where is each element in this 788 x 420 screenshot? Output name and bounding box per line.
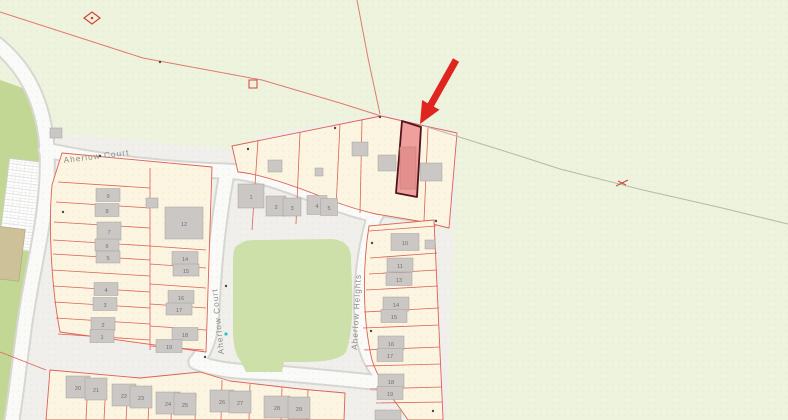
plot-number: 21 (93, 388, 99, 394)
plot-building: 23 (130, 386, 152, 408)
plot-number: 23 (138, 396, 144, 402)
plot-building: 19 (156, 340, 182, 353)
plot-building: 18 (378, 374, 404, 388)
plot-number: 17 (176, 308, 182, 314)
plot-number: 18 (182, 333, 188, 339)
plot-building: 6 (95, 239, 119, 251)
plot-number: 4 (315, 204, 318, 210)
plot-building: 4 (94, 283, 118, 296)
plot-number: 14 (182, 257, 188, 263)
plot-building: 28 (264, 396, 290, 418)
plot-number: 16 (178, 296, 184, 302)
plot-number: 10 (402, 241, 408, 247)
plot-number: 26 (219, 400, 225, 406)
plot-number: 5 (106, 256, 109, 262)
plot-building: 8 (95, 204, 119, 217)
plot-building: 27 (229, 391, 251, 413)
plot-building: 3 (93, 298, 117, 311)
plot-building: 17 (166, 303, 192, 315)
teal-dot-marker (224, 332, 227, 335)
plot-number: 20 (75, 386, 81, 392)
plot-number: 29 (296, 407, 302, 413)
plot-number: 17 (387, 354, 393, 360)
plot-number: 24 (165, 402, 171, 408)
plot-building: 29 (288, 397, 310, 419)
plot-number: 19 (387, 392, 393, 398)
plot-building: 1 (238, 184, 264, 208)
plot-number: 15 (183, 269, 189, 275)
plot-number: 8 (105, 209, 108, 215)
plot-number: 5 (327, 206, 330, 212)
plot-building: 1 (90, 330, 114, 343)
plot-number: 25 (182, 403, 188, 409)
plot-building: 17 (377, 349, 403, 362)
plot-number: 28 (274, 406, 280, 412)
plot-building: 16 (168, 291, 194, 304)
plot-number: 7 (107, 230, 110, 236)
plot-number: 1 (100, 335, 103, 341)
plot-number: 2 (274, 205, 277, 211)
plot-number: 18 (388, 380, 394, 386)
plot-number: 15 (391, 315, 397, 321)
map-canvas[interactable]: 9876543211214151617181912345101113141516… (0, 0, 788, 420)
plot-building: 15 (173, 264, 199, 276)
plot-building: 14 (172, 252, 198, 265)
plot-building: 7 (97, 222, 121, 240)
plot-number: 2 (101, 323, 104, 329)
plot-building: 9 (96, 189, 120, 202)
plot-building: 12 (165, 207, 203, 239)
plot-building: 21 (85, 378, 107, 400)
plot-number: 9 (106, 194, 109, 200)
plot-number: 16 (388, 342, 394, 348)
plot-building: 2 (91, 318, 115, 331)
plot-number: 3 (103, 303, 106, 309)
plot-number: 12 (181, 222, 187, 228)
plot-number: 13 (396, 278, 402, 284)
plot-number: 6 (105, 244, 108, 250)
plot-building: 16 (378, 336, 404, 350)
highlighted-building (400, 147, 416, 189)
plot-number: 22 (121, 394, 127, 400)
map-viewport[interactable]: 9876543211214151617181912345101113141516… (0, 0, 788, 420)
plot-number: 4 (104, 288, 107, 294)
plot-number: 27 (237, 401, 243, 407)
plot-building: 10 (391, 234, 419, 251)
plot-building: 15 (381, 310, 407, 323)
plot-building: 19 (377, 387, 403, 400)
plot-number: 14 (393, 303, 399, 309)
plot-building: 3 (283, 198, 301, 216)
plot-number: 3 (290, 206, 293, 212)
plot-building: 14 (383, 297, 409, 311)
plot-number: 19 (166, 345, 172, 351)
plot-building: 13 (386, 273, 412, 286)
plot-building: 25 (174, 393, 196, 415)
plot-building: 18 (172, 328, 198, 341)
plot-number: 1 (249, 195, 252, 201)
plot-building: 5 (96, 251, 120, 263)
plot-building: 5 (321, 199, 338, 216)
plot-number: 11 (397, 264, 403, 270)
plot-building: 11 (387, 258, 413, 272)
